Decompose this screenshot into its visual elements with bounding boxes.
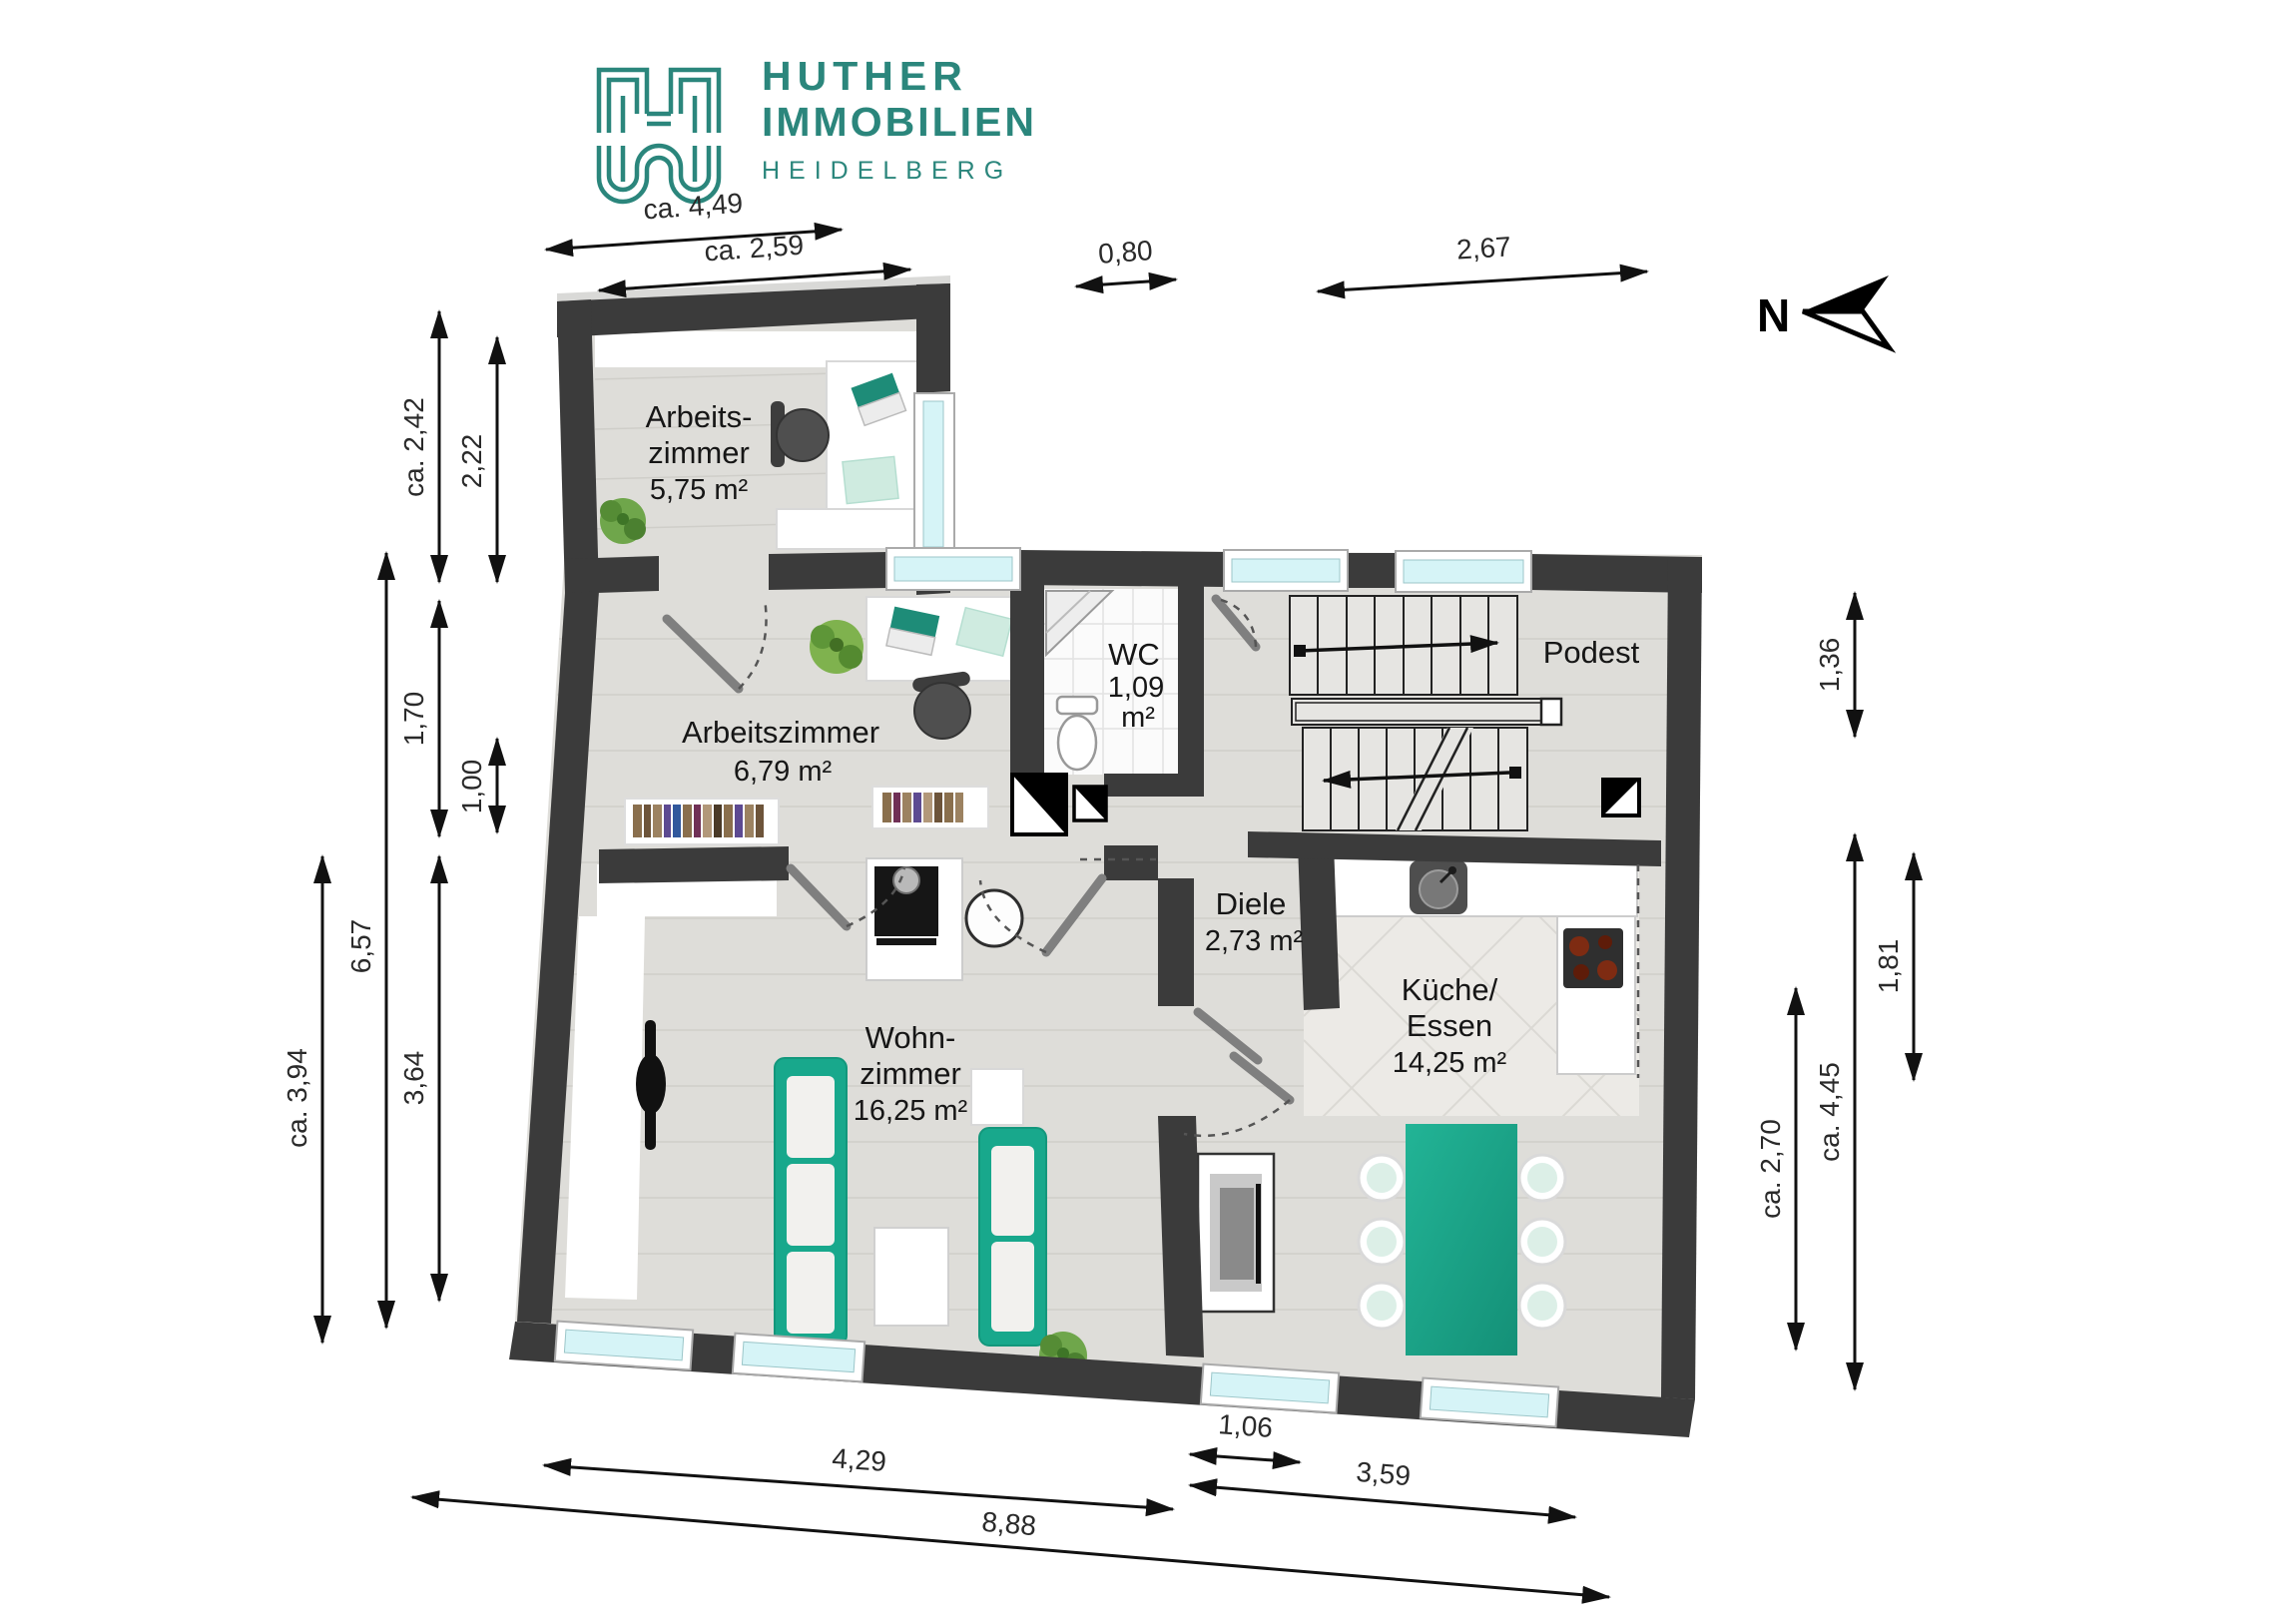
- brand-line1: HUTHER: [762, 53, 968, 99]
- dim-top-3: 2,67: [1318, 231, 1647, 291]
- shaft-symbol-1: [1012, 775, 1066, 834]
- dim-left-0: ca. 2,42: [398, 311, 439, 582]
- room-area-wc-2: m²: [1121, 702, 1155, 734]
- window-top-3: [1396, 551, 1531, 592]
- svg-text:1,06: 1,06: [1217, 1408, 1274, 1443]
- dim-left-2: 1,70: [398, 601, 439, 836]
- svg-text:2,22: 2,22: [456, 434, 487, 489]
- dim-left-5: ca. 3,94: [282, 856, 322, 1343]
- room-label-az2: Arbeitszimmer: [682, 715, 879, 750]
- brand-line2: IMMOBILIEN: [762, 99, 1037, 145]
- sofa-large: [775, 1058, 847, 1346]
- room-label-az1-line2: zimmer: [648, 435, 750, 470]
- dim-left-1: 2,22: [456, 337, 497, 582]
- svg-text:ca. 2,70: ca. 2,70: [1755, 1119, 1786, 1219]
- toilet: [1057, 697, 1097, 770]
- room-area-kueche: 14,25 m²: [1393, 1047, 1507, 1079]
- floor-plan-canvas: HUTHER IMMOBILIEN HEIDELBERG N: [0, 0, 2296, 1623]
- north-label: N: [1757, 289, 1790, 341]
- svg-text:8,88: 8,88: [980, 1506, 1037, 1541]
- shaft-symbol-3: [1603, 780, 1639, 815]
- room-label-podest: Podest: [1543, 635, 1640, 670]
- window-top-2: [1224, 550, 1348, 591]
- dim-right-3: ca. 4,45: [1814, 834, 1855, 1389]
- round-table: [966, 890, 1022, 946]
- kitchen-counter-top: [1306, 858, 1637, 916]
- svg-text:ca. 4,49: ca. 4,49: [643, 188, 745, 226]
- coffee-table: [874, 1228, 948, 1326]
- room-label-kueche-line2: Essen: [1407, 1008, 1492, 1043]
- window-bottom-3: [1201, 1364, 1339, 1413]
- svg-text:1,00: 1,00: [456, 760, 487, 814]
- brand-logo: HUTHER IMMOBILIEN HEIDELBERG: [599, 53, 1037, 202]
- room-label-az1-line1: Arbeits-: [646, 399, 753, 434]
- dining-set: [1359, 1124, 1565, 1355]
- window-bottom-2: [733, 1334, 864, 1382]
- window-wing-right: [914, 393, 954, 555]
- dim-bottom-1: 1,06: [1190, 1408, 1300, 1462]
- brand-logo-icon: [599, 70, 719, 202]
- folder-1: [843, 456, 898, 503]
- svg-text:ca. 4,45: ca. 4,45: [1814, 1062, 1845, 1162]
- room-label-wohn-line2: zimmer: [860, 1056, 961, 1091]
- svg-text:3,59: 3,59: [1355, 1456, 1412, 1491]
- kitchen-sink: [1410, 860, 1467, 914]
- svg-text:1,36: 1,36: [1814, 638, 1845, 693]
- window-top-1: [886, 548, 1020, 590]
- svg-text:4,29: 4,29: [831, 1442, 887, 1477]
- room-area-az2: 6,79 m²: [734, 756, 833, 788]
- svg-text:ca. 2,59: ca. 2,59: [704, 230, 806, 268]
- dim-bottom-3: 8,88: [412, 1497, 1609, 1597]
- sideboard-tv: [1198, 1154, 1274, 1312]
- room-label-wc: WC: [1108, 637, 1160, 672]
- dim-right-2: ca. 2,70: [1755, 988, 1796, 1350]
- room-area-wohn: 16,25 m²: [854, 1095, 968, 1127]
- plant-2: [810, 620, 863, 674]
- dim-left-4: 6,57: [345, 553, 386, 1328]
- room-area-diele: 2,73 m²: [1205, 925, 1304, 957]
- end-table: [971, 1069, 1023, 1125]
- dim-right-0: 1,36: [1814, 593, 1855, 737]
- dining-table: [1406, 1124, 1517, 1355]
- bookshelf-1: [625, 799, 779, 844]
- window-bottom-4: [1421, 1378, 1558, 1427]
- window-bottom-1: [555, 1322, 693, 1370]
- svg-text:6,57: 6,57: [345, 919, 376, 974]
- sideboard-small-office: [777, 509, 918, 549]
- svg-text:2,67: 2,67: [1455, 231, 1511, 265]
- wood-stove: [866, 858, 962, 980]
- room-area-wc-1: 1,09: [1108, 672, 1164, 704]
- plant-1: [600, 498, 646, 544]
- dim-right-1: 1,81: [1873, 853, 1914, 1080]
- svg-text:1,70: 1,70: [398, 692, 429, 747]
- svg-text:1,81: 1,81: [1873, 939, 1904, 994]
- room-label-kueche-line1: Küche/: [1402, 972, 1498, 1007]
- svg-text:3,64: 3,64: [398, 1051, 429, 1106]
- brand-line3: HEIDELBERG: [762, 157, 1012, 185]
- dim-bottom-2: 3,59: [1190, 1456, 1575, 1517]
- north-arrow: N: [1757, 275, 1889, 347]
- dim-bottom-0: 4,29: [544, 1442, 1173, 1509]
- north-arrow-icon: [1803, 275, 1889, 311]
- room-label-diele: Diele: [1216, 886, 1287, 921]
- floor-plan-page: HUTHER IMMOBILIEN HEIDELBERG N: [0, 0, 2296, 1623]
- svg-text:0,80: 0,80: [1097, 235, 1154, 270]
- svg-text:ca. 2,42: ca. 2,42: [398, 397, 429, 497]
- dim-left-6: 3,64: [398, 856, 439, 1301]
- room-area-az1: 5,75 m²: [650, 474, 749, 506]
- bookshelf-2: [872, 787, 988, 828]
- stair-newel: [1541, 699, 1561, 725]
- office-chair-2: [911, 671, 970, 739]
- shaft-symbol-2: [1074, 787, 1106, 820]
- stove-cooktop: [1563, 928, 1623, 988]
- svg-text:ca. 3,94: ca. 3,94: [282, 1048, 312, 1148]
- dim-left-3: 1,00: [456, 739, 497, 832]
- sofa-small: [979, 1128, 1046, 1346]
- room-label-wohn-line1: Wohn-: [865, 1020, 956, 1055]
- dim-top-2: 0,80: [1076, 235, 1176, 286]
